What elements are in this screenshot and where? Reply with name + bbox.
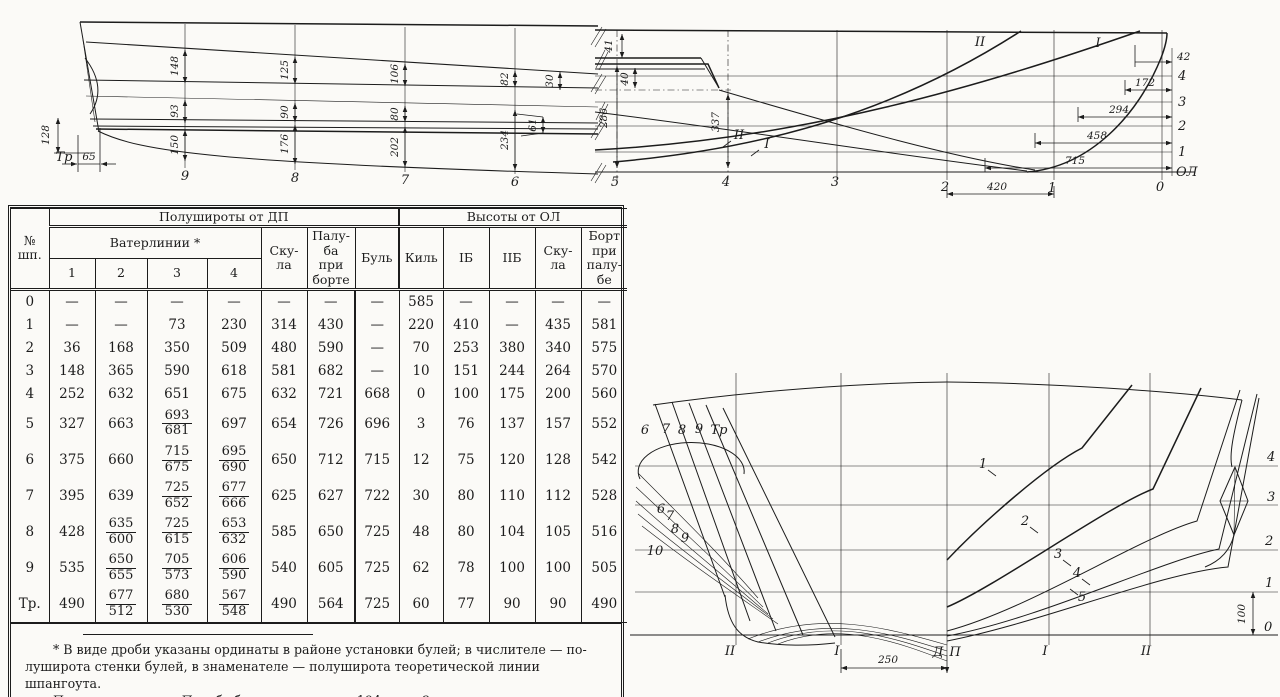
table-row: 8428635600725615653632585650725488010410… bbox=[11, 514, 627, 550]
waterline-number: 3 bbox=[147, 258, 207, 289]
offset-value-cell: 535 bbox=[49, 550, 95, 586]
bow-side-edge bbox=[1231, 400, 1242, 467]
footnote-line: луширота стенки булей, в знаменателе — п… bbox=[25, 658, 607, 692]
dim-label: 234 bbox=[499, 130, 511, 151]
profile-hull-curves bbox=[595, 31, 1167, 172]
plan-dimensions bbox=[54, 50, 560, 172]
column-group-halfbreadths: Полушироты от ДП bbox=[49, 209, 399, 227]
column-header-keel: Киль bbox=[399, 227, 443, 290]
frame-label: 8 bbox=[678, 423, 686, 438]
offset-value-cell: 30 bbox=[399, 478, 443, 514]
offset-value-cell: 653632 bbox=[207, 514, 261, 550]
plan-waterline-curves bbox=[80, 22, 598, 174]
dim-label: 82 bbox=[499, 72, 511, 86]
dim-label: 337 bbox=[710, 112, 722, 132]
offsets-table-header: № шп. Полушироты от ДП Высоты от ОЛ Вате… bbox=[11, 209, 627, 290]
waterline-label: 0 bbox=[1264, 620, 1272, 635]
frame-label: 7 bbox=[662, 422, 671, 437]
column-header-bulge: Буль bbox=[355, 227, 399, 290]
waterline-label: 2 bbox=[1264, 534, 1273, 549]
station-label: 1 bbox=[1048, 181, 1056, 196]
station-label: 2 bbox=[940, 180, 949, 195]
station-label: 9 bbox=[181, 169, 189, 184]
plan-dimension-labels: 148 93 150 125 90 176 106 80 202 82 234 … bbox=[40, 56, 556, 165]
dim-label: 90 bbox=[279, 105, 291, 119]
frame-number-cell: 5 bbox=[11, 406, 49, 442]
offset-value-cell: 567548 bbox=[207, 586, 261, 623]
frame-label: 5 bbox=[1078, 590, 1086, 605]
offset-value-cell: 105 bbox=[535, 514, 581, 550]
offset-value-cell: 677666 bbox=[207, 478, 261, 514]
deck-edge-curve bbox=[653, 382, 1242, 405]
offset-value-cell: 252 bbox=[49, 383, 95, 406]
frame-label: 6 bbox=[641, 423, 649, 438]
offset-value-cell: 157 bbox=[535, 406, 581, 442]
stem-curve bbox=[1027, 33, 1167, 172]
offset-value-cell: 264 bbox=[535, 360, 581, 383]
offset-value-cell: 490 bbox=[49, 586, 95, 623]
offset-value-cell: 560 bbox=[581, 383, 627, 406]
table-row: Тр.4906775126805305675484905647256077909… bbox=[11, 586, 627, 623]
offset-value-cell: — bbox=[95, 289, 147, 314]
profile-station-labels: 5 4 3 2 1 0 bbox=[611, 175, 1164, 196]
column-header-chine: Ску- ла bbox=[261, 227, 307, 290]
offset-value-cell: 660 bbox=[95, 442, 147, 478]
offset-value-cell: 564 bbox=[307, 586, 355, 623]
table-row: 9535650655705573606590540605725627810010… bbox=[11, 550, 627, 586]
offset-value-cell: 712 bbox=[307, 442, 355, 478]
offset-value-cell: 78 bbox=[443, 550, 489, 586]
column-header-frame: № шп. bbox=[11, 209, 49, 290]
offset-value-cell: — bbox=[261, 289, 307, 314]
offset-value-cell: 36 bbox=[49, 337, 95, 360]
offset-value-cell: 581 bbox=[261, 360, 307, 383]
offset-value-cell: 60 bbox=[399, 586, 443, 623]
offset-value-cell: — bbox=[581, 289, 627, 314]
waterline-label: ОЛ bbox=[1176, 165, 1199, 180]
offset-value-cell: 639 bbox=[95, 478, 147, 514]
offset-value-cell: — bbox=[49, 314, 95, 337]
offset-value-cell: 12 bbox=[399, 442, 443, 478]
offset-value-cell: — bbox=[489, 314, 535, 337]
station-label: 8 bbox=[291, 171, 299, 186]
offset-value-cell: 682 bbox=[307, 360, 355, 383]
offset-value-cell: — bbox=[307, 289, 355, 314]
offset-value-cell: 137 bbox=[489, 406, 535, 442]
offset-value-cell: 3 bbox=[399, 406, 443, 442]
column-header-deck-at-side: Палу- ба при борте bbox=[307, 227, 355, 290]
offset-value-cell: 314 bbox=[261, 314, 307, 337]
offset-value-cell: 585 bbox=[399, 289, 443, 314]
offset-value-cell: 528 bbox=[581, 478, 627, 514]
dim-label: 40 bbox=[619, 72, 631, 87]
buttock-label: II bbox=[733, 128, 745, 143]
buttock-label: I bbox=[833, 644, 840, 659]
dim-label: 106 bbox=[389, 64, 401, 84]
column-header-IIb: IIБ bbox=[489, 227, 535, 290]
offset-value-cell: 715675 bbox=[147, 442, 207, 478]
dim-label: 41 bbox=[603, 39, 615, 53]
table-row: 3148365590618581682—10151244264570 bbox=[11, 360, 627, 383]
offsets-table: № шп. Полушироты от ДП Высоты от ОЛ Вате… bbox=[8, 205, 624, 697]
column-header-Ib: IБ bbox=[443, 227, 489, 290]
buttock-label: I bbox=[1094, 36, 1101, 51]
dim-label: 172 bbox=[1135, 77, 1155, 89]
plan-station-labels: 9 8 7 6 bbox=[181, 169, 519, 190]
frame-number-cell: 9 bbox=[11, 550, 49, 586]
dim-label: 65 bbox=[82, 151, 96, 163]
offset-value-cell: 428 bbox=[49, 514, 95, 550]
offset-value-cell: — bbox=[489, 289, 535, 314]
offset-value-cell: 663 bbox=[95, 406, 147, 442]
plan-view-drawing: 148 93 150 125 90 176 106 80 202 82 234 … bbox=[0, 0, 640, 200]
offset-value-cell: 693681 bbox=[147, 406, 207, 442]
offset-value-cell: 80 bbox=[443, 514, 489, 550]
offset-value-cell: 650655 bbox=[95, 550, 147, 586]
waterline-label: 4 bbox=[1177, 69, 1186, 84]
offset-value-cell: 340 bbox=[535, 337, 581, 360]
offset-value-cell: 375 bbox=[49, 442, 95, 478]
frame-label: 6 bbox=[657, 502, 665, 517]
dim-label: 125 bbox=[279, 60, 291, 80]
offset-value-cell: 480 bbox=[261, 337, 307, 360]
offset-value-cell: 110 bbox=[489, 478, 535, 514]
station-label: 0 bbox=[1156, 180, 1164, 195]
offset-value-cell: 697 bbox=[207, 406, 261, 442]
frame-number-cell: 4 bbox=[11, 383, 49, 406]
offset-value-cell: 542 bbox=[581, 442, 627, 478]
offset-value-cell: — bbox=[355, 314, 399, 337]
frame-label: Тр bbox=[711, 423, 729, 438]
table-row: 236168350509480590—70253380340575 bbox=[11, 337, 627, 360]
offset-value-cell: 540 bbox=[261, 550, 307, 586]
buttock-label: II bbox=[724, 644, 736, 659]
frame-label: 3 bbox=[1054, 547, 1062, 562]
offset-value-cell: 168 bbox=[95, 337, 147, 360]
offset-value-cell: 365 bbox=[95, 360, 147, 383]
profile-waterline-labels: 4 3 2 1 ОЛ bbox=[1176, 69, 1199, 180]
profile-buttock-labels: II I II I bbox=[723, 35, 1101, 156]
offset-value-cell: 90 bbox=[489, 586, 535, 623]
offset-value-cell: 715 bbox=[355, 442, 399, 478]
frame-number-cell: 0 bbox=[11, 289, 49, 314]
frame-number-cell: Тр. bbox=[11, 586, 49, 623]
scanned-document-page: 148 93 150 125 90 176 106 80 202 82 234 … bbox=[0, 0, 1280, 697]
offset-value-cell: 575 bbox=[581, 337, 627, 360]
offset-value-cell: 76 bbox=[443, 406, 489, 442]
waterline-label: 2 bbox=[1177, 119, 1186, 134]
offset-value-cell: 675 bbox=[207, 383, 261, 406]
frame-label: 8 bbox=[671, 522, 679, 537]
table-row: 0———————585———— bbox=[11, 289, 627, 314]
dim-label: 176 bbox=[279, 134, 291, 154]
offset-value-cell: 490 bbox=[581, 586, 627, 623]
offset-value-cell: — bbox=[355, 360, 399, 383]
offsets-table-body: 0———————585————1——73230314430—220410—435… bbox=[11, 289, 627, 623]
offset-value-cell: 395 bbox=[49, 478, 95, 514]
dim-label: 458 bbox=[1086, 130, 1107, 142]
offset-value-cell: 175 bbox=[489, 383, 535, 406]
offset-value-cell: 151 bbox=[443, 360, 489, 383]
buttock-label: II bbox=[974, 35, 986, 50]
station-label: 4 bbox=[721, 175, 730, 190]
offset-value-cell: 668 bbox=[355, 383, 399, 406]
offset-value-cell: 220 bbox=[399, 314, 443, 337]
offset-value-cell: 253 bbox=[443, 337, 489, 360]
frame-5-curve bbox=[947, 398, 1259, 641]
offset-value-cell: 725615 bbox=[147, 514, 207, 550]
frame-number-cell: 2 bbox=[11, 337, 49, 360]
dim-label: 61 bbox=[527, 118, 539, 131]
frame-label: 9 bbox=[695, 422, 703, 437]
offset-value-cell: 725 bbox=[355, 550, 399, 586]
frame-number-cell: 8 bbox=[11, 514, 49, 550]
offset-value-cell: — bbox=[355, 289, 399, 314]
table-row: 6375660715675695690650712715127512012854… bbox=[11, 442, 627, 478]
offset-value-cell: 705573 bbox=[147, 550, 207, 586]
offset-value-cell: 618 bbox=[207, 360, 261, 383]
offset-value-cell: 590 bbox=[307, 337, 355, 360]
station-label: 7 bbox=[401, 173, 410, 188]
frame-number-cell: 7 bbox=[11, 478, 49, 514]
footnote-line: * В виде дроби указаны ординаты в районе… bbox=[25, 641, 607, 658]
table-row: 5327663693681697654726696376137157552 bbox=[11, 406, 627, 442]
waterline-number: 1 bbox=[49, 258, 95, 289]
offset-value-cell: 70 bbox=[399, 337, 443, 360]
offset-value-cell: 128 bbox=[535, 442, 581, 478]
offset-value-cell: 722 bbox=[355, 478, 399, 514]
waterline-number: 4 bbox=[207, 258, 261, 289]
offset-value-cell: 590 bbox=[147, 360, 207, 383]
offset-value-cell: 112 bbox=[535, 478, 581, 514]
offset-value-cell: 581 bbox=[581, 314, 627, 337]
dim-label: 42 bbox=[1176, 51, 1191, 63]
dim-label: 150 bbox=[169, 135, 181, 155]
offset-value-cell: 552 bbox=[581, 406, 627, 442]
frame-label: 2 bbox=[1020, 514, 1029, 529]
waterline-label: 1 bbox=[1265, 576, 1273, 591]
frame-label: 4 bbox=[1072, 566, 1081, 581]
offset-value-cell: 725 bbox=[355, 586, 399, 623]
offset-value-cell: 606590 bbox=[207, 550, 261, 586]
table-footnote: * В виде дроби указаны ординаты в районе… bbox=[11, 623, 621, 697]
profile-dimension-labels: 41 286 40 337 42 172 294 458 715 420 bbox=[598, 39, 1191, 193]
offset-value-cell: 635600 bbox=[95, 514, 147, 550]
table-row: 7395639725652677666625627722308011011252… bbox=[11, 478, 627, 514]
offset-value-cell: 632 bbox=[95, 383, 147, 406]
frame-1-curve bbox=[947, 385, 1132, 560]
offset-value-cell: — bbox=[207, 289, 261, 314]
offset-value-cell: 120 bbox=[489, 442, 535, 478]
body-fore-frame-labels: 1 2 3 4 5 bbox=[979, 457, 1090, 605]
column-header-waterlines: Ватерлинии * bbox=[49, 227, 261, 258]
station-label: 6 bbox=[511, 175, 519, 190]
offset-value-cell: 725652 bbox=[147, 478, 207, 514]
offset-value-cell: 570 bbox=[581, 360, 627, 383]
frame-label: 1 bbox=[979, 457, 987, 472]
dim-label: 128 bbox=[40, 125, 52, 145]
offset-value-cell: 104 bbox=[489, 514, 535, 550]
waterline-label: 3 bbox=[1178, 95, 1186, 110]
buttock-label: I bbox=[763, 137, 770, 152]
offset-value-cell: 509 bbox=[207, 337, 261, 360]
dim-label: 148 bbox=[169, 56, 181, 76]
dim-label: 250 bbox=[877, 654, 898, 666]
offset-value-cell: 350 bbox=[147, 337, 207, 360]
offset-value-cell: — bbox=[95, 314, 147, 337]
waterline-label: 3 bbox=[1267, 490, 1275, 505]
offset-value-cell: 75 bbox=[443, 442, 489, 478]
offset-value-cell: 650 bbox=[307, 514, 355, 550]
offset-value-cell: 725 bbox=[355, 514, 399, 550]
offset-value-cell: — bbox=[443, 289, 489, 314]
offset-value-cell: 327 bbox=[49, 406, 95, 442]
frame-number-cell: 1 bbox=[11, 314, 49, 337]
dim-label: 286 bbox=[598, 108, 610, 129]
offset-value-cell: 148 bbox=[49, 360, 95, 383]
station-label: 5 bbox=[611, 175, 619, 190]
offset-value-cell: 680530 bbox=[147, 586, 207, 623]
frame-number-cell: 3 bbox=[11, 360, 49, 383]
offset-value-cell: 696 bbox=[355, 406, 399, 442]
dim-label: 420 bbox=[986, 181, 1007, 193]
dim-label: 294 bbox=[1108, 104, 1129, 116]
offset-value-cell: 48 bbox=[399, 514, 443, 550]
offset-value-cell: 410 bbox=[443, 314, 489, 337]
offset-value-cell: 435 bbox=[535, 314, 581, 337]
table-row: 42526326516756327216680100175200560 bbox=[11, 383, 627, 406]
frame-label: 10 bbox=[647, 544, 664, 559]
offset-value-cell: 200 bbox=[535, 383, 581, 406]
offset-value-cell: 80 bbox=[443, 478, 489, 514]
bulge-contour bbox=[638, 443, 744, 479]
offset-value-cell: — bbox=[147, 289, 207, 314]
offset-value-cell: 654 bbox=[261, 406, 307, 442]
footnote-rule bbox=[83, 634, 313, 635]
frame-label: 9 bbox=[681, 531, 689, 546]
offset-value-cell: 230 bbox=[207, 314, 261, 337]
offset-value-cell: 430 bbox=[307, 314, 355, 337]
waterline-label: 1 bbox=[1178, 145, 1186, 160]
dim-label: 80 bbox=[389, 107, 401, 121]
offset-value-cell: 632 bbox=[261, 383, 307, 406]
buttock-label: I bbox=[1041, 644, 1048, 659]
centerline-label: Д bbox=[932, 645, 944, 660]
column-header-side-at-deck: Борт при палу- бе bbox=[581, 227, 627, 290]
frame-number-cell: 6 bbox=[11, 442, 49, 478]
body-axis-labels: II I Д П I II bbox=[724, 644, 1152, 660]
frame-3-curve bbox=[947, 390, 1240, 631]
offset-value-cell: 90 bbox=[535, 586, 581, 623]
station-label: 3 bbox=[831, 175, 839, 190]
offset-value-cell: — bbox=[49, 289, 95, 314]
offset-value-cell: 505 bbox=[581, 550, 627, 586]
offset-value-cell: 100 bbox=[535, 550, 581, 586]
body-plan-drawing: 250 100 6 7 8 9 Тр 6 7 8 9 10 1 2 3 4 5 … bbox=[630, 355, 1280, 697]
offset-value-cell: 695690 bbox=[207, 442, 261, 478]
offset-value-cell: 380 bbox=[489, 337, 535, 360]
waterline-number: 2 bbox=[95, 258, 147, 289]
buttock-label: II bbox=[1140, 644, 1152, 659]
station-label-tr: Тр bbox=[56, 150, 74, 165]
column-header-chine-height: Ску- ла bbox=[535, 227, 581, 290]
offset-value-cell: 490 bbox=[261, 586, 307, 623]
offset-value-cell: 726 bbox=[307, 406, 355, 442]
body-grid bbox=[630, 373, 1278, 655]
offset-value-cell: 77 bbox=[443, 586, 489, 623]
column-group-heights: Высоты от ОЛ bbox=[399, 209, 627, 227]
dim-label: 715 bbox=[1065, 155, 1085, 167]
offset-value-cell: 100 bbox=[489, 550, 535, 586]
profile-view-drawing: 41 286 40 337 42 172 294 458 715 420 II … bbox=[595, 0, 1280, 200]
offset-value-cell: 677512 bbox=[95, 586, 147, 623]
offset-value-cell: 516 bbox=[581, 514, 627, 550]
offset-value-cell: 651 bbox=[147, 383, 207, 406]
body-dimensions bbox=[841, 592, 1253, 673]
body-fore-frames bbox=[947, 385, 1259, 641]
offset-value-cell: — bbox=[535, 289, 581, 314]
body-waterline-labels: 4 3 2 1 0 bbox=[1264, 450, 1275, 635]
offset-value-cell: 625 bbox=[261, 478, 307, 514]
table-row: 1——73230314430—220410—435581 bbox=[11, 314, 627, 337]
offset-value-cell: 605 bbox=[307, 550, 355, 586]
offset-value-cell: 244 bbox=[489, 360, 535, 383]
offset-value-cell: 650 bbox=[261, 442, 307, 478]
waterline-label: 4 bbox=[1266, 450, 1275, 465]
offset-value-cell: 0 bbox=[399, 383, 443, 406]
offset-value-cell: 627 bbox=[307, 478, 355, 514]
offset-value-cell: — bbox=[355, 337, 399, 360]
offset-value-cell: 73 bbox=[147, 314, 207, 337]
dim-label: 93 bbox=[169, 104, 181, 118]
offset-value-cell: 585 bbox=[261, 514, 307, 550]
dim-label: 100 bbox=[1236, 604, 1248, 624]
dim-label: 30 bbox=[544, 74, 556, 88]
offset-value-cell: 62 bbox=[399, 550, 443, 586]
offset-value-cell: 10 bbox=[399, 360, 443, 383]
footnote-note: П р и м е ч а н и е. Погибь бимсов — см.… bbox=[25, 692, 607, 697]
offset-value-cell: 100 bbox=[443, 383, 489, 406]
dim-label: 202 bbox=[389, 137, 401, 158]
offset-value-cell: 721 bbox=[307, 383, 355, 406]
centerline-label: П bbox=[948, 645, 961, 660]
